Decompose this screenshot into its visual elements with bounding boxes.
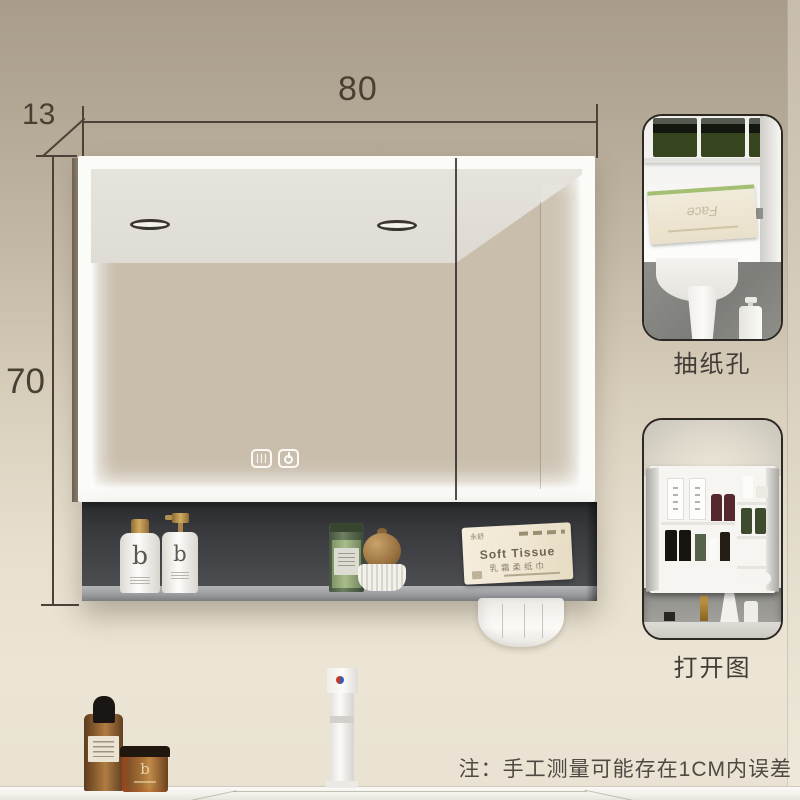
inset2-shelf-line bbox=[661, 522, 735, 525]
bottle-2-logo: b bbox=[162, 542, 198, 566]
dimension-width-line bbox=[82, 121, 598, 123]
pump-bottle-gold-head bbox=[172, 513, 189, 523]
measurement-note: 注：手工测量可能存在1CM内误差 bbox=[372, 753, 792, 783]
mirror-reflection-wall-corner-line bbox=[540, 202, 541, 489]
inset2-dark-red-bottle bbox=[711, 494, 722, 521]
dimension-depth-label: 13 bbox=[22, 98, 55, 132]
power-icon-stem bbox=[288, 452, 290, 458]
power-touch-button[interactable] bbox=[278, 449, 299, 468]
faucet-body bbox=[330, 691, 354, 786]
tissue-box-brand: 永舒 bbox=[470, 532, 485, 543]
pump-bottle-stem bbox=[178, 523, 183, 532]
green-jar-label-text-lines bbox=[338, 553, 355, 567]
dimension-height-line bbox=[52, 156, 54, 606]
faucet-hot-cold-indicator bbox=[336, 676, 344, 684]
inset2-white-pump-bottle bbox=[744, 601, 758, 624]
inset2-dark-red-bottle bbox=[724, 494, 735, 521]
inset2-white-product-box bbox=[667, 478, 684, 520]
inset2-green-pump-bottle bbox=[741, 508, 752, 534]
amber-bottle-label bbox=[88, 736, 119, 762]
brush-bristles bbox=[358, 564, 406, 591]
inset2-shelf-line bbox=[737, 566, 767, 569]
green-jar-label bbox=[334, 548, 359, 575]
reflected-downlight-right bbox=[377, 220, 417, 231]
inset2-white-tube-top bbox=[743, 476, 753, 498]
tissue-crease bbox=[542, 604, 543, 638]
inset2-white-jar bbox=[756, 486, 768, 498]
faucet-collar bbox=[330, 716, 354, 723]
tissue-box-mini-logo bbox=[472, 571, 482, 580]
amber-bottle-label-text-lines bbox=[93, 741, 114, 757]
inset1-tissue-box-brand: Face bbox=[648, 200, 756, 223]
dimension-width-label: 80 bbox=[338, 70, 378, 109]
reflected-downlight-left bbox=[130, 219, 170, 230]
inset-photo-tissue-hole: Face bbox=[642, 114, 783, 341]
bottle-1-logo: b bbox=[120, 541, 160, 570]
product-photo-stage: 80 13 70 b b bbox=[0, 0, 800, 800]
amber-bottle-black-cap bbox=[93, 696, 115, 723]
inset1-pump-bottle bbox=[739, 306, 762, 341]
amber-jar-logo: b bbox=[122, 760, 168, 778]
tissue-crease bbox=[502, 604, 503, 638]
mirror-door-split-line bbox=[455, 158, 457, 500]
inset1-caption: 抽纸孔 bbox=[642, 344, 783, 379]
dimension-height-tick-top bbox=[36, 155, 77, 157]
inset2-caption: 打开图 bbox=[642, 648, 783, 683]
inset1-green-bottle bbox=[653, 118, 697, 157]
inset-photo-open-cabinet bbox=[642, 418, 783, 640]
inset2-black-bottle bbox=[679, 530, 691, 561]
amber-jar-lid bbox=[120, 746, 170, 757]
inset2-green-box bbox=[695, 534, 706, 561]
inset2-green-pump-bottle bbox=[755, 508, 766, 534]
inset1-green-bottle bbox=[701, 118, 745, 157]
inset2-shelf-line bbox=[737, 502, 767, 505]
faucet-base bbox=[326, 781, 358, 788]
green-jar-cap bbox=[330, 523, 363, 532]
inset1-tissue-box: Face bbox=[647, 184, 757, 244]
inset2-black-bottle bbox=[665, 530, 677, 561]
inset1-tissue-box-text-line bbox=[668, 226, 738, 233]
inset2-small-dark-item bbox=[664, 612, 675, 621]
inset2-shelf-line bbox=[737, 536, 767, 539]
wall-corner-strip bbox=[787, 0, 800, 800]
amber-jar-text-line bbox=[134, 781, 156, 783]
dimension-width-tick-left bbox=[82, 106, 84, 156]
inset2-open-cabinet bbox=[649, 466, 776, 593]
dimension-height-label: 70 bbox=[6, 362, 45, 402]
inset2-gold-bottle bbox=[700, 596, 708, 621]
inset2-white-tube bbox=[709, 538, 717, 561]
tissue-box: 永舒 Soft Tissue 乳霜柔纸巾 bbox=[462, 522, 574, 585]
inset2-box-text-marks bbox=[695, 487, 700, 511]
inset2-rolled-towel bbox=[739, 572, 771, 585]
inset2-countertop bbox=[644, 622, 781, 638]
mirror-reflection-wall-corner-shade bbox=[541, 185, 582, 489]
inset2-brown-bottle bbox=[720, 532, 730, 561]
mirror-reflection-ceiling-left bbox=[91, 169, 456, 263]
defog-icon bbox=[255, 453, 268, 464]
dimension-height-tick-bottom bbox=[41, 604, 79, 606]
sink-basin-back-edge bbox=[233, 791, 587, 792]
tissue-box-cert-icons bbox=[519, 529, 565, 535]
white-pump-bottle: b bbox=[162, 532, 198, 593]
white-bottle-1: b bbox=[120, 533, 160, 593]
shelf-right-edge bbox=[586, 502, 597, 601]
inset2-box-text-marks bbox=[673, 487, 678, 511]
inset2-open-door-left bbox=[646, 467, 659, 592]
defog-touch-button[interactable] bbox=[251, 449, 272, 468]
inset1-door-hinge bbox=[756, 208, 763, 219]
tissue-pulled-through-hole bbox=[478, 598, 564, 647]
bottle-2-label-text-lines bbox=[171, 572, 189, 579]
inset1-open-door bbox=[760, 116, 781, 266]
bottle-1-label-text-lines bbox=[130, 577, 150, 584]
tissue-crease bbox=[524, 604, 525, 638]
dimension-width-tick-right bbox=[596, 104, 598, 158]
inset2-white-product-box bbox=[689, 478, 706, 520]
